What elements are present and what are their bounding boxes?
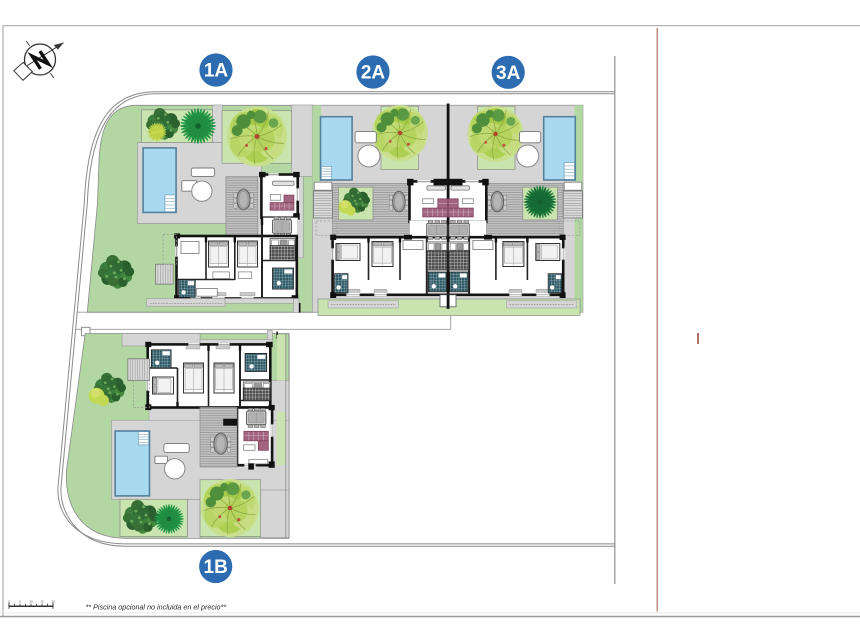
svg-text:3A: 3A (496, 63, 521, 84)
svg-text:10: 10 (29, 600, 33, 604)
svg-text:20: 20 (51, 600, 55, 604)
svg-text:1A: 1A (204, 61, 229, 82)
svg-text:** Piscina opcional no incluid: ** Piscina opcional no incluida en el pr… (86, 603, 227, 612)
svg-text:2A: 2A (361, 63, 386, 84)
svg-text:1B: 1B (204, 557, 228, 578)
svg-text:15: 15 (40, 600, 44, 604)
